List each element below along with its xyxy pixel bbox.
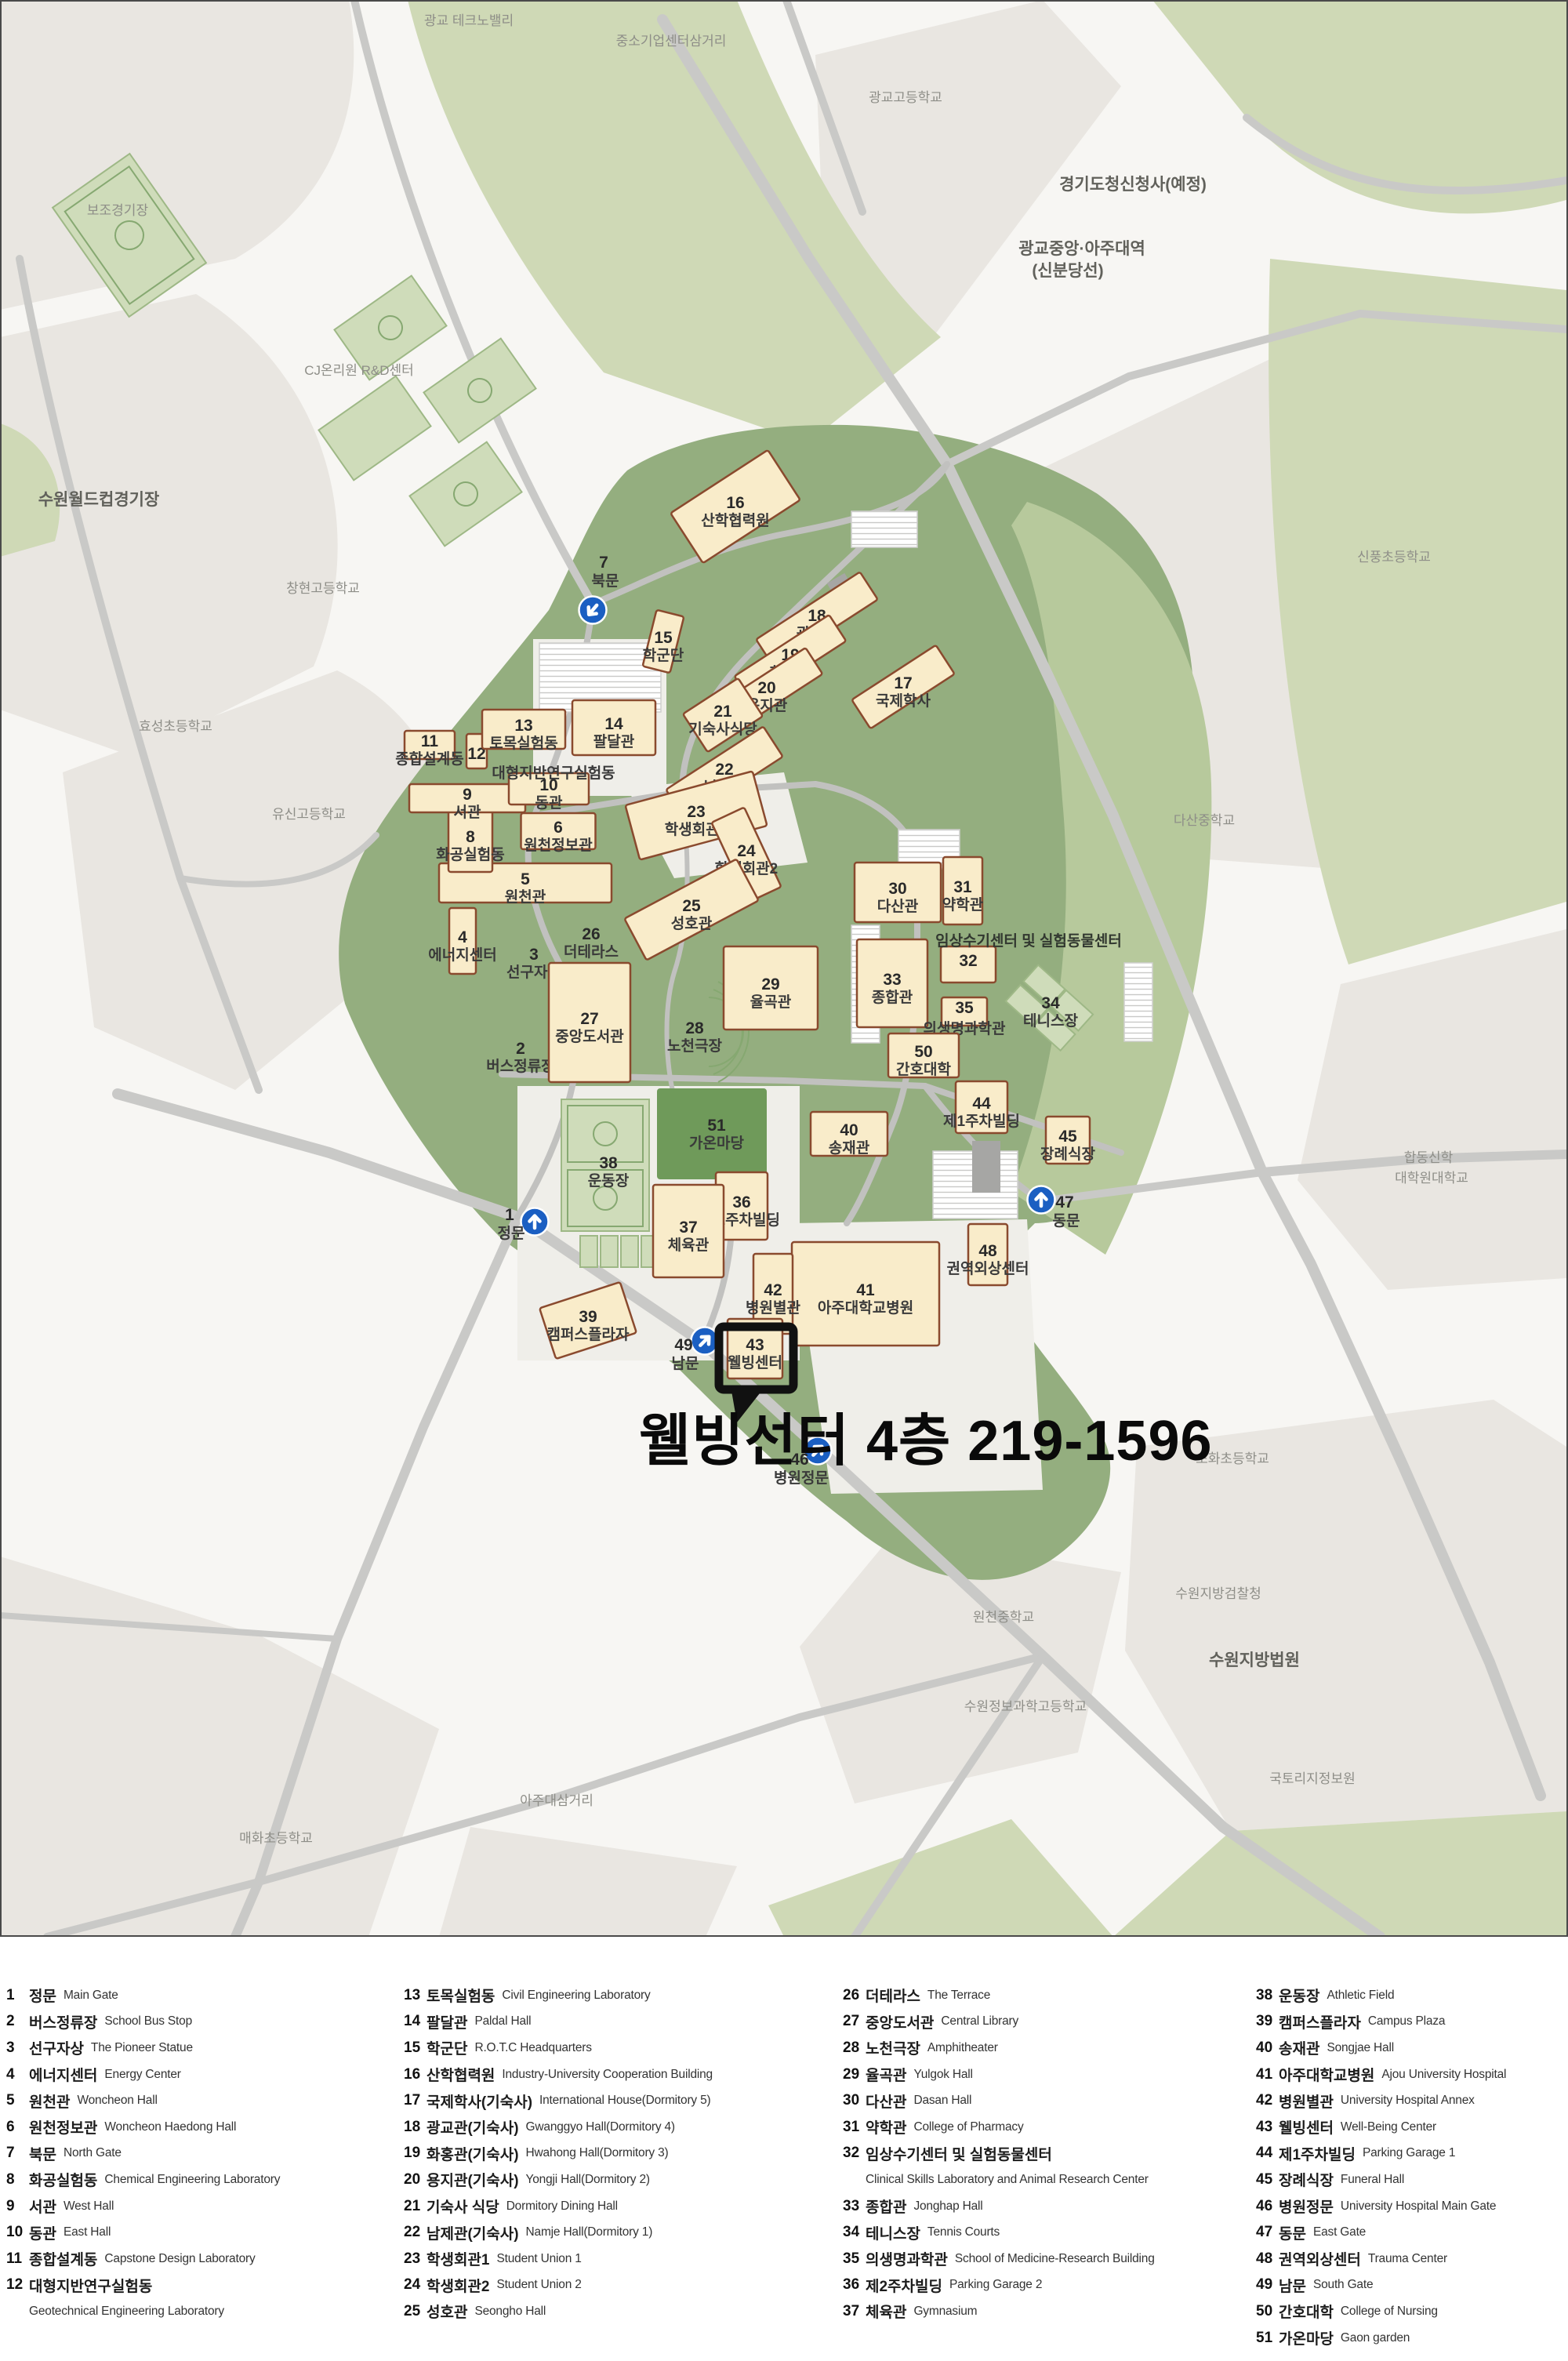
svg-text:송재관: 송재관	[829, 1139, 870, 1157]
svg-text:2: 2	[516, 1040, 525, 1058]
svg-text:캠퍼스플라자: 캠퍼스플라자	[547, 1326, 630, 1343]
legend-item-33: 33종합관Jonghap Hall	[843, 2193, 1251, 2220]
svg-text:35: 35	[955, 999, 974, 1017]
svg-text:36: 36	[732, 1193, 750, 1211]
area-label: 효성초등학교	[139, 719, 212, 734]
svg-text:38: 38	[599, 1154, 618, 1172]
svg-text:4: 4	[458, 928, 467, 946]
svg-text:팔달관: 팔달관	[593, 733, 635, 750]
svg-text:아주대학교병원: 아주대학교병원	[818, 1299, 913, 1317]
legend: 1정문Main Gate2버스정류장School Bus Stop3선구자상Th…	[0, 1937, 1568, 2351]
svg-text:27: 27	[580, 1010, 598, 1028]
legend-item-46: 46병원정문University Hospital Main Gate	[1256, 2193, 1568, 2220]
svg-text:산학협력원: 산학협력원	[701, 512, 769, 529]
svg-text:가온마당: 가온마당	[689, 1135, 744, 1152]
area-label: 아주대삼거리	[520, 1793, 593, 1808]
map-building-41: 41아주대학교병원	[792, 1242, 939, 1346]
legend-item-9: 9서관West Hall	[6, 2193, 398, 2220]
legend-column-1: 1정문Main Gate2버스정류장School Bus Stop3선구자상Th…	[0, 1982, 398, 2351]
map-building-31: 31약학관	[942, 857, 984, 924]
svg-text:에너지센터: 에너지센터	[428, 946, 496, 964]
legend-item-47: 47동문East Gate	[1256, 2219, 1568, 2246]
legend-item-25: 25성호관Seongho Hall	[404, 2298, 837, 2325]
legend-item-40: 40송재관Songjae Hall	[1256, 2035, 1568, 2061]
map-building-45: 45장례식장	[1040, 1117, 1095, 1164]
svg-text:41: 41	[856, 1281, 875, 1299]
legend-item-42: 42병원별관University Hospital Annex	[1256, 2087, 1568, 2114]
legend-item-12-english: Geotechnical Engineering Laboratory	[6, 2298, 398, 2325]
legend-item-44: 44제1주차빌딩Parking Garage 1	[1256, 2141, 1568, 2167]
svg-text:8: 8	[466, 828, 475, 846]
legend-item-26: 26더테라스The Terrace	[843, 1982, 1251, 2009]
legend-column-3: 26더테라스The Terrace27중앙도서관Central Library2…	[837, 1982, 1251, 2351]
svg-text:5: 5	[521, 870, 530, 888]
svg-text:17: 17	[894, 674, 912, 692]
map-building-32: 32	[941, 946, 996, 983]
legend-item-10: 10동관East Hall	[6, 2219, 398, 2246]
map-building-13: 13토목실험동	[482, 710, 565, 752]
svg-text:국제학사: 국제학사	[876, 692, 931, 710]
svg-text:43: 43	[746, 1336, 764, 1354]
map-building-11: 11종합설계동	[395, 731, 463, 768]
area-label: 임상수기센터 및 실험동물센터	[935, 932, 1122, 950]
legend-item-50: 50간호대학College of Nursing	[1256, 2298, 1568, 2325]
area-label: 국토리지정보원	[1269, 1771, 1355, 1786]
svg-text:중앙도서관: 중앙도서관	[555, 1028, 624, 1045]
svg-text:37: 37	[679, 1219, 697, 1237]
legend-item-34: 34테니스장Tennis Courts	[843, 2219, 1251, 2246]
svg-text:11: 11	[421, 732, 439, 750]
legend-item-2: 2버스정류장School Bus Stop	[6, 2009, 398, 2036]
legend-item-3: 3선구자상The Pioneer Statue	[6, 2035, 398, 2061]
legend-item-43: 43웰빙센터Well-Being Center	[1256, 2114, 1568, 2141]
legend-item-51: 51가온마당Gaon garden	[1256, 2325, 1568, 2352]
svg-text:장례식장: 장례식장	[1040, 1146, 1095, 1163]
legend-item-27: 27중앙도서관Central Library	[843, 2009, 1251, 2036]
svg-text:51: 51	[707, 1117, 726, 1135]
map-building-50: 50간호대학	[888, 1033, 959, 1078]
svg-text:23: 23	[687, 803, 705, 821]
legend-item-49: 49남문South Gate	[1256, 2272, 1568, 2299]
svg-text:28: 28	[685, 1019, 704, 1037]
legend-item-22: 22남제관(기숙사)Namje Hall(Dormitory 1)	[404, 2219, 837, 2246]
svg-text:20: 20	[757, 679, 775, 697]
svg-text:노천극장: 노천극장	[667, 1037, 722, 1055]
legend-item-20: 20용지관(기숙사)Yongji Hall(Dormitory 2)	[404, 2167, 837, 2193]
legend-item-13: 13토목실험동Civil Engineering Laboratory	[404, 1982, 837, 2009]
area-label: 대학원대학교	[1395, 1171, 1468, 1186]
map-building-27: 27중앙도서관	[549, 963, 630, 1082]
svg-text:33: 33	[883, 971, 901, 989]
svg-text:원천정보관: 원천정보관	[524, 837, 593, 854]
svg-text:30: 30	[888, 880, 906, 898]
svg-text:화공실험동: 화공실험동	[436, 846, 504, 863]
svg-text:남문: 남문	[672, 1355, 699, 1372]
area-label: 원천중학교	[973, 1610, 1034, 1625]
map-building-33: 33종합관	[857, 939, 927, 1027]
svg-text:39: 39	[579, 1308, 597, 1326]
legend-item-37: 37체육관Gymnasium	[843, 2298, 1251, 2325]
svg-text:32: 32	[959, 952, 977, 970]
area-label: 신풍초등학교	[1357, 550, 1431, 565]
svg-text:율곡관: 율곡관	[750, 993, 792, 1011]
svg-text:24: 24	[737, 842, 756, 860]
map-canvas: 2버스정류장3선구자상4에너지센터5원천관6원천정보관8화공실험동9서관10동관…	[0, 0, 1568, 1937]
legend-item-41: 41아주대학교병원Ajou University Hospital	[1256, 2061, 1568, 2088]
legend-item-15: 15학군단R.O.T.C Headquarters	[404, 2035, 837, 2061]
legend-item-35: 35의생명과학관School of Medicine-Research Buil…	[843, 2246, 1251, 2272]
svg-text:49: 49	[674, 1336, 692, 1354]
legend-item-32: 32임상수기센터 및 실험동물센터	[843, 2141, 1251, 2167]
campus-map: 2버스정류장3선구자상4에너지센터5원천관6원천정보관8화공실험동9서관10동관…	[0, 0, 1568, 1937]
svg-text:21: 21	[713, 703, 732, 721]
svg-text:학군단: 학군단	[643, 647, 684, 664]
area-label: 합동신학	[1404, 1150, 1454, 1165]
svg-text:버스정류장: 버스정류장	[486, 1058, 555, 1075]
svg-text:정문: 정문	[498, 1225, 525, 1242]
svg-text:40: 40	[840, 1121, 858, 1139]
area-label: 매화초등학교	[239, 1831, 313, 1846]
svg-text:42: 42	[764, 1281, 782, 1299]
svg-text:종합관: 종합관	[872, 989, 913, 1006]
legend-item-6: 6원천정보관Woncheon Haedong Hall	[6, 2114, 398, 2141]
svg-text:16: 16	[726, 494, 744, 512]
legend-item-4: 4에너지센터Energy Center	[6, 2061, 398, 2088]
legend-item-28: 28노천극장Amphitheater	[843, 2035, 1251, 2061]
svg-text:44: 44	[972, 1095, 991, 1113]
svg-text:동관: 동관	[535, 794, 563, 812]
legend-item-23: 23학생회관1Student Union 1	[404, 2246, 837, 2272]
svg-text:50: 50	[914, 1043, 932, 1061]
map-building-37: 37체육관	[653, 1185, 724, 1277]
legend-item-18: 18광교관(기숙사)Gwanggyo Hall(Dormitory 4)	[404, 2114, 837, 2141]
legend-item-32-english: Clinical Skills Laboratory and Animal Re…	[843, 2167, 1251, 2193]
svg-text:서관: 서관	[454, 804, 481, 821]
legend-item-31: 31약학관College of Pharmacy	[843, 2114, 1251, 2141]
svg-text:성호관: 성호관	[671, 915, 713, 932]
legend-item-21: 21기숙사 식당Dormitory Dining Hall	[404, 2193, 837, 2220]
svg-text:웰빙센터: 웰빙센터	[728, 1354, 782, 1371]
svg-text:3: 3	[529, 946, 539, 964]
svg-text:22: 22	[715, 761, 733, 779]
svg-text:45: 45	[1058, 1128, 1077, 1146]
area-label: 수원지방검찰청	[1175, 1586, 1261, 1601]
svg-text:31: 31	[953, 878, 972, 896]
map-building-30: 30다산관	[855, 863, 941, 922]
area-label: CJ온리원 R&D센터	[304, 363, 414, 378]
legend-column-2: 13토목실험동Civil Engineering Laboratory14팔달관…	[398, 1982, 837, 2351]
area-label: 중소기업센터삼거리	[616, 34, 727, 49]
legend-item-19: 19화홍관(기숙사)Hwahong Hall(Dormitory 3)	[404, 2141, 837, 2167]
area-label: 광교고등학교	[869, 90, 942, 105]
area-label: 수원지방법원	[1209, 1651, 1300, 1669]
area-label: 창현고등학교	[286, 581, 360, 596]
annotation-text: 웰빙선터 4층 219-1596	[639, 1410, 1213, 1473]
svg-text:9: 9	[463, 786, 472, 804]
svg-text:25: 25	[682, 897, 701, 915]
svg-text:운동장: 운동장	[588, 1172, 630, 1190]
legend-item-39: 39캠퍼스플라자Campus Plaza	[1256, 2009, 1568, 2036]
legend-item-14: 14팔달관Paldal Hall	[404, 2009, 837, 2036]
legend-item-45: 45장례식장Funeral Hall	[1256, 2167, 1568, 2193]
map-building-40: 40송재관	[811, 1112, 887, 1157]
legend-item-8: 8화공실험동Chemical Engineering Laboratory	[6, 2167, 398, 2193]
svg-text:7: 7	[599, 554, 608, 572]
map-building-29: 29율곡관	[724, 946, 818, 1030]
svg-text:종합설계동: 종합설계동	[395, 750, 463, 768]
svg-text:다산관: 다산관	[877, 898, 919, 915]
legend-item-16: 16산학협력원Industry-University Cooperation B…	[404, 2061, 837, 2088]
svg-text:1: 1	[505, 1206, 514, 1224]
svg-text:권역외상센터: 권역외상센터	[947, 1260, 1029, 1277]
svg-text:34: 34	[1041, 994, 1060, 1012]
area-label: 광교중앙·아주대역	[1018, 240, 1145, 258]
svg-text:13: 13	[514, 717, 532, 735]
svg-text:북문: 북문	[592, 572, 619, 590]
area-label: 수원월드컵경기장	[38, 491, 160, 509]
legend-item-38: 38운동장Athletic Field	[1256, 1982, 1568, 2009]
svg-text:26: 26	[582, 925, 600, 943]
area-label: (신분당선)	[1032, 262, 1103, 280]
svg-text:토목실험동: 토목실험동	[489, 735, 557, 752]
svg-text:48: 48	[978, 1242, 997, 1260]
svg-text:29: 29	[761, 975, 779, 993]
legend-item-12: 12대형지반연구실험동	[6, 2272, 398, 2299]
legend-column-4: 38운동장Athletic Field39캠퍼스플라자Campus Plaza4…	[1251, 1982, 1568, 2351]
svg-text:병원별관: 병원별관	[746, 1299, 800, 1317]
area-label: 유신고등학교	[272, 807, 346, 822]
legend-item-48: 48권역외상센터Trauma Center	[1256, 2246, 1568, 2272]
svg-text:6: 6	[554, 819, 563, 837]
area-label: 경기도청신청사(예정)	[1059, 176, 1207, 194]
svg-text:제1주차빌딩: 제1주차빌딩	[943, 1113, 1020, 1130]
svg-text:간호대학: 간호대학	[896, 1061, 951, 1078]
legend-item-5: 5원천관Woncheon Hall	[6, 2087, 398, 2114]
area-label: 수원정보과학고등학교	[964, 1699, 1087, 1714]
svg-text:테니스장: 테니스장	[1023, 1012, 1078, 1030]
svg-text:15: 15	[654, 629, 673, 647]
svg-text:더테라스: 더테라스	[564, 943, 619, 961]
legend-item-29: 29율곡관Yulgok Hall	[843, 2061, 1251, 2088]
map-building-6: 6원천정보관	[521, 813, 596, 854]
svg-text:동문: 동문	[1053, 1213, 1080, 1230]
legend-item-17: 17국제학사(기숙사)International House(Dormitory…	[404, 2087, 837, 2114]
svg-text:체육관: 체육관	[668, 1237, 710, 1254]
svg-text:원천관: 원천관	[505, 888, 546, 906]
legend-item-30: 30다산관Dasan Hall	[843, 2087, 1251, 2114]
legend-item-7: 7북문North Gate	[6, 2141, 398, 2167]
svg-text:대형지반연구실험동: 대형지반연구실험동	[492, 765, 615, 782]
legend-item-11: 11종합설계동Capstone Design Laboratory	[6, 2246, 398, 2272]
svg-text:약학관: 약학관	[942, 896, 984, 914]
area-label: 광교 테크노밸리	[424, 13, 514, 28]
svg-text:기숙사식당: 기숙사식당	[688, 721, 757, 738]
map-building-14: 14팔달관	[572, 700, 655, 755]
area-label: 보조경기장	[87, 203, 149, 218]
legend-item-24: 24학생회관2Student Union 2	[404, 2272, 837, 2299]
area-label: 다산중학교	[1174, 813, 1235, 828]
legend-item-1: 1정문Main Gate	[6, 1982, 398, 2009]
svg-text:47: 47	[1055, 1193, 1073, 1211]
legend-item-36: 36제2주차빌딩Parking Garage 2	[843, 2272, 1251, 2299]
svg-text:14: 14	[604, 715, 623, 733]
